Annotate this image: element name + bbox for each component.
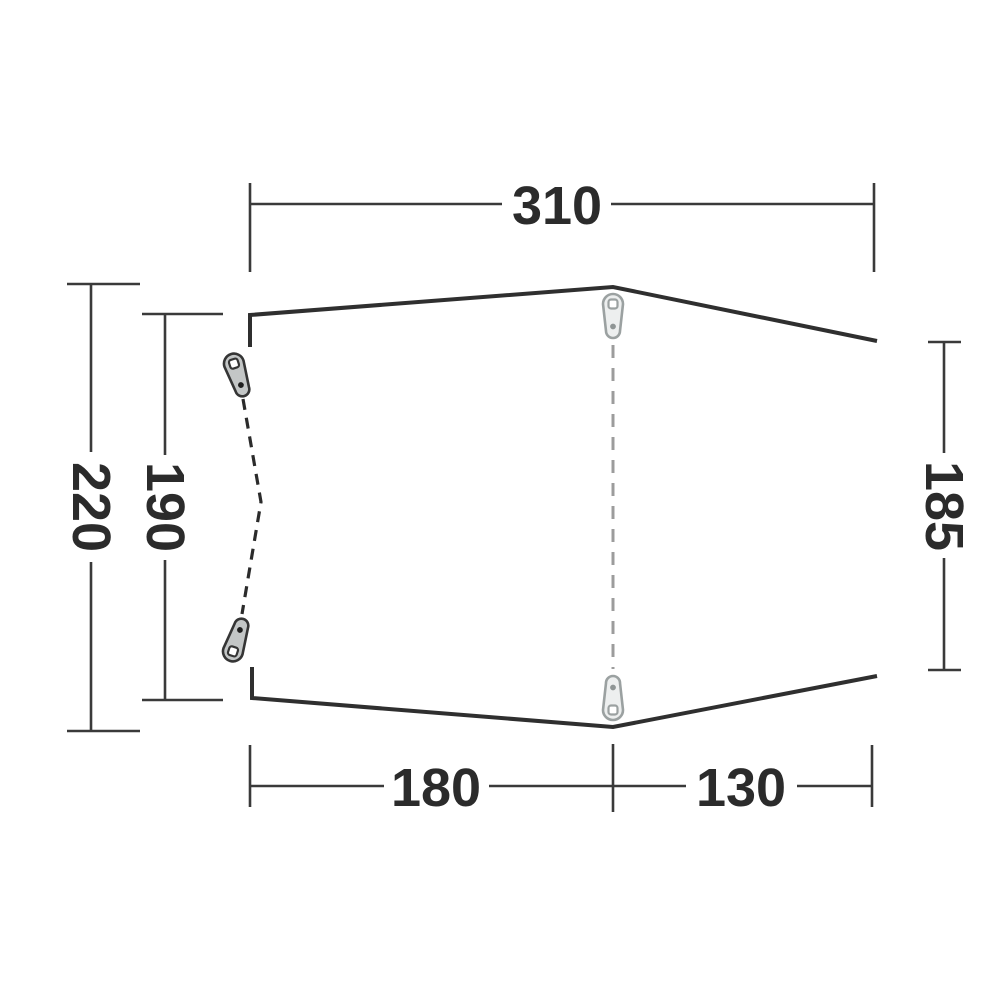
dimension-label-door-depth: 190 [135,462,195,552]
dimension-outer-depth: 220 [61,284,140,731]
tent-peg-icon [603,676,623,720]
dimension-door-depth: 190 [135,314,223,700]
dimension-label-bottom-rear-width: 130 [696,758,786,818]
dimension-label-outer-depth: 220 [61,462,121,552]
tent-peg-icon [221,351,254,399]
tent-outline-bottom-edge [252,667,877,727]
dimension-label-top-width: 310 [512,176,602,236]
dimension-right-depth: 185 [914,342,974,670]
dimension-label-bottom-front-width: 180 [391,758,481,818]
tent-peg-icon [603,294,623,338]
tent-outline-top-edge [250,287,877,347]
dimension-label-right-depth: 185 [914,461,974,551]
door-dashed-line [242,399,261,614]
dimension-bottom-widths: 180 130 [250,744,872,818]
tent-footprint-diagram: 310 220 190 185 [0,0,1000,1000]
diagram-canvas: 310 220 190 185 [0,0,1000,1000]
tent-peg-icon [220,616,253,664]
dimension-top-width: 310 [250,176,874,272]
